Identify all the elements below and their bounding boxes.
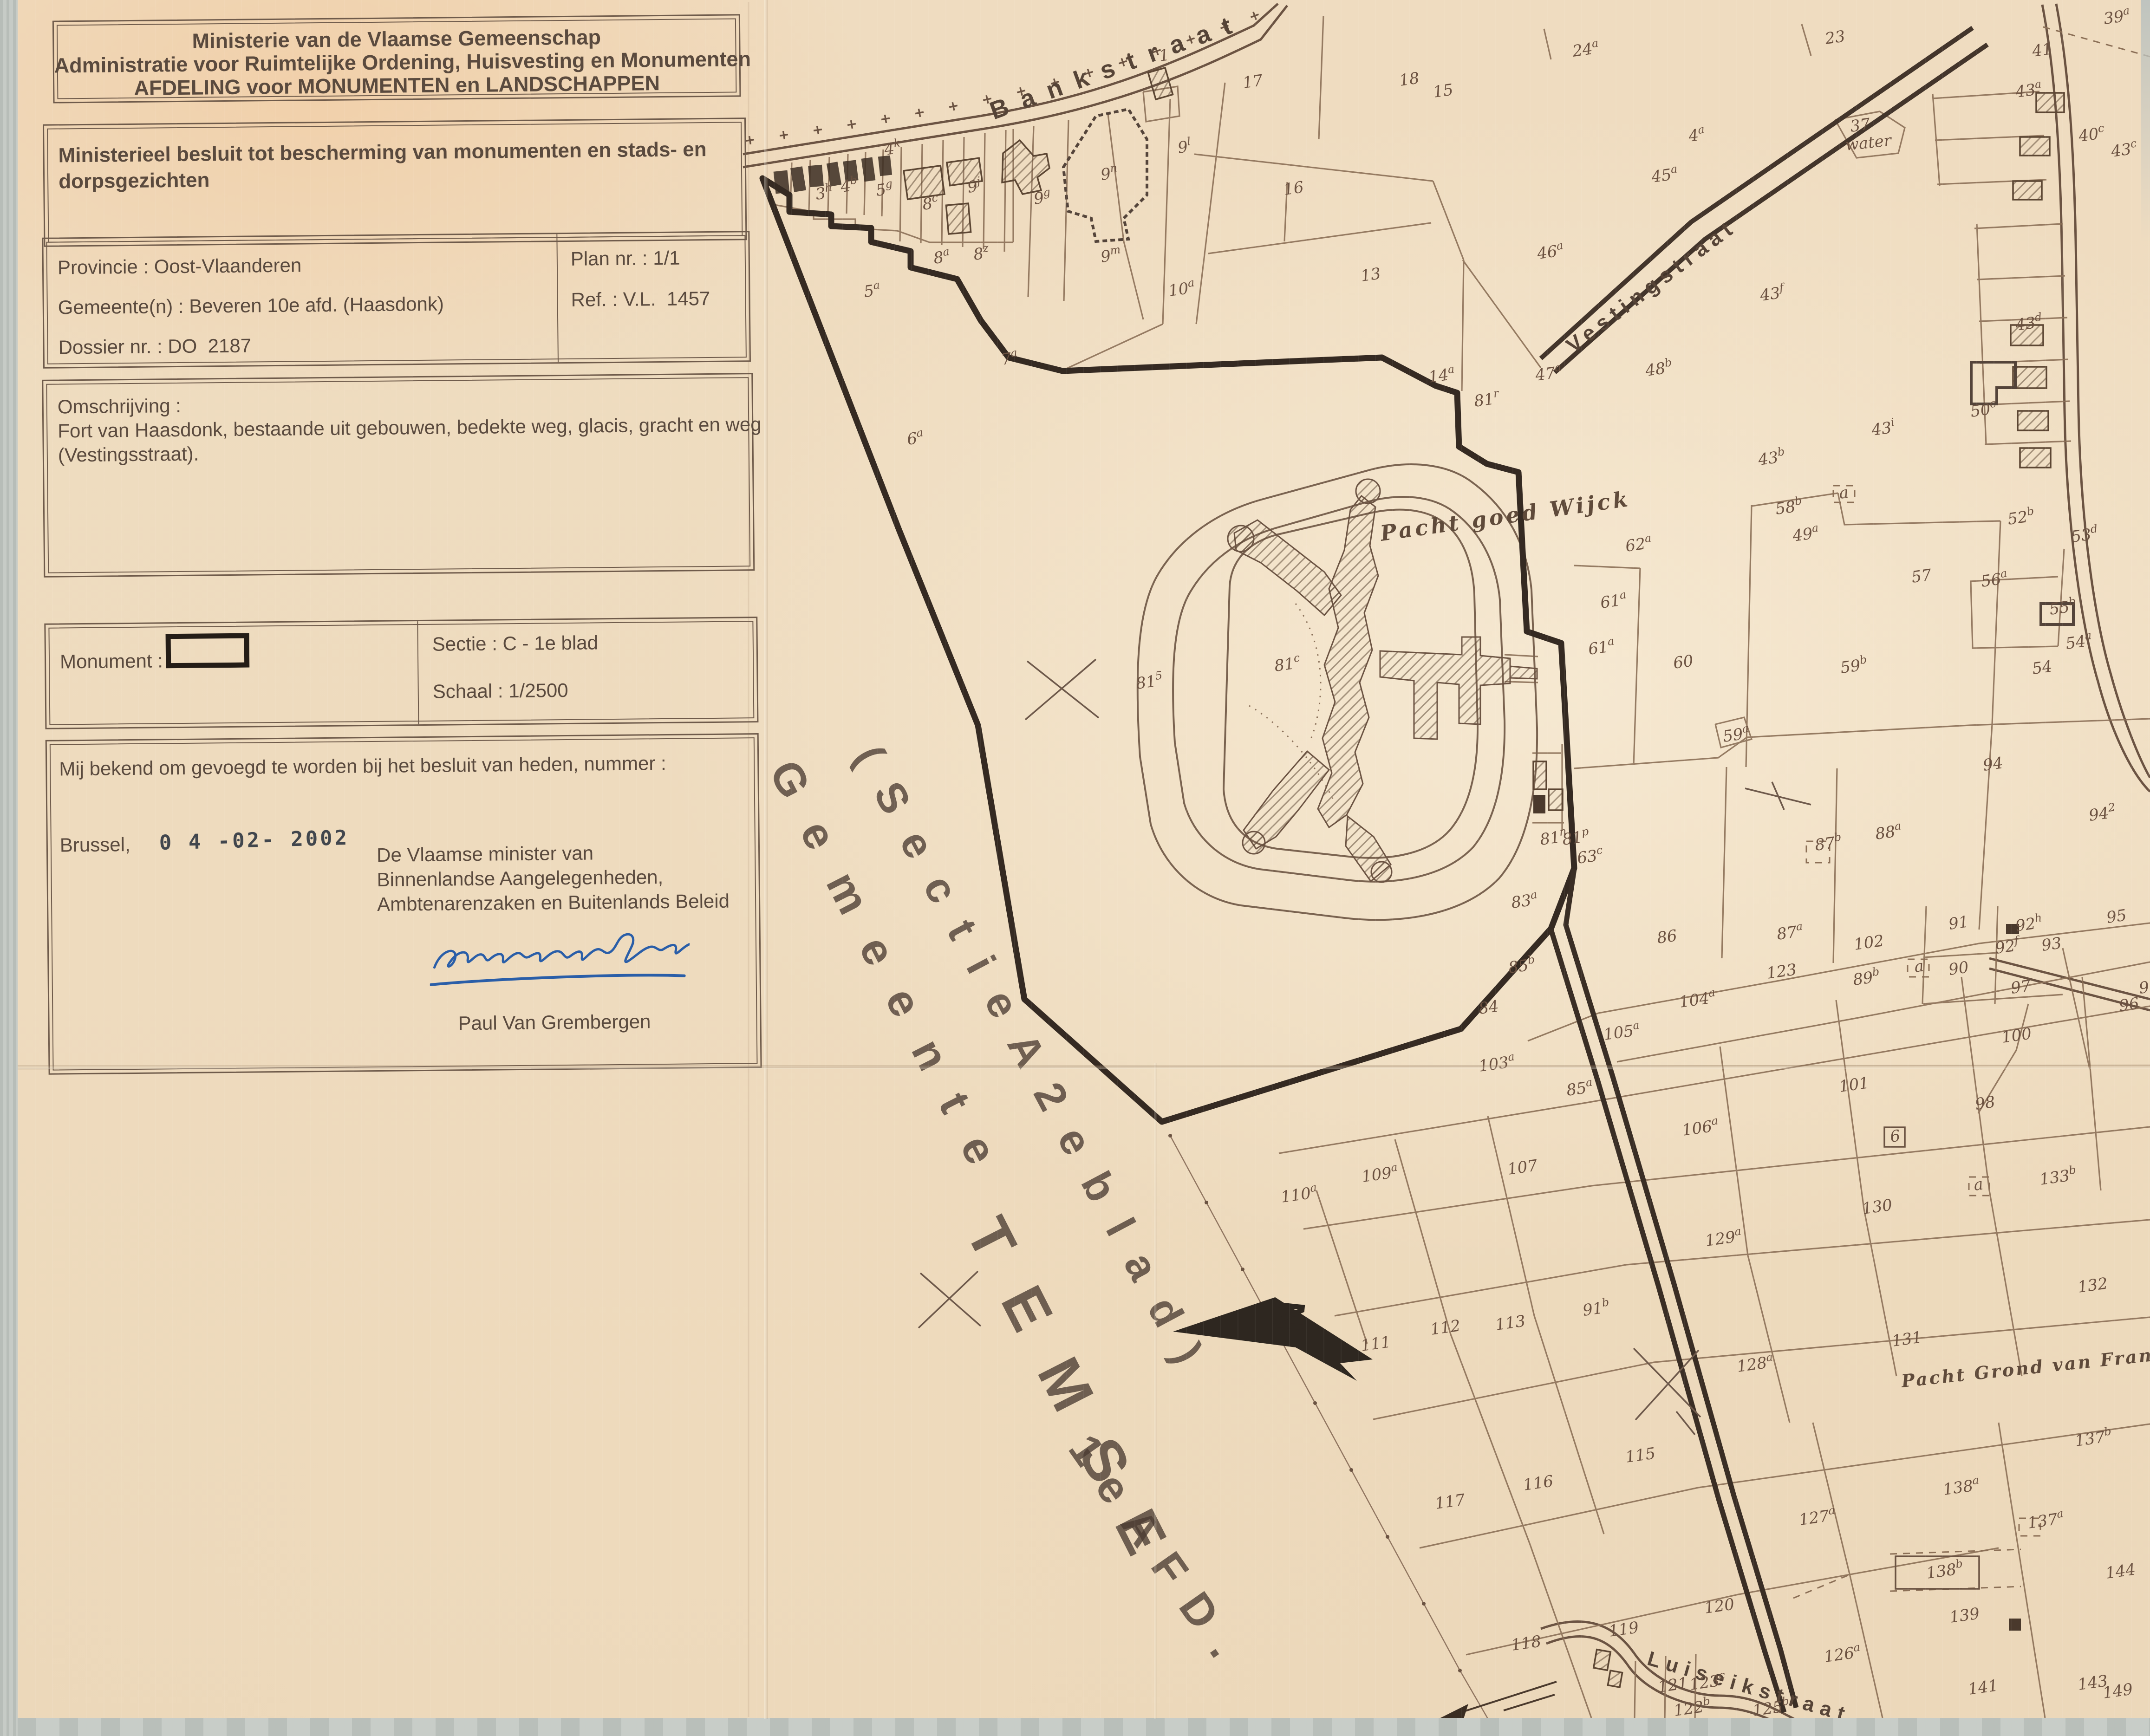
parcel-label: 60 xyxy=(1672,651,1694,673)
parcel-label: 16 xyxy=(1283,178,1305,199)
ref-label: Ref. : V.L. 1457 xyxy=(571,287,710,311)
parcel-lines xyxy=(772,16,2150,1723)
parcel-label: 137b xyxy=(2073,1424,2113,1450)
parcel-label: a xyxy=(1973,1175,1985,1194)
municipality-label: Gemeente(n) : Beveren 10e afd. (Haasdonk… xyxy=(58,293,444,319)
parcel-label: 81c xyxy=(1273,651,1302,675)
parcel-label: 59b xyxy=(1839,653,1869,677)
parcel-label: 118 xyxy=(1510,1632,1543,1655)
parcel-label: 4b xyxy=(839,173,859,196)
parcel-label: 39a xyxy=(2102,4,2131,28)
parcel-label: 15 xyxy=(1432,80,1454,102)
parcel-label: 144 xyxy=(2104,1560,2137,1583)
parcel-label: 43c xyxy=(2109,137,2138,161)
monument-label: Monument : xyxy=(60,650,163,673)
parcel-label: 24a xyxy=(1570,36,1600,61)
parcel-label: 18 xyxy=(1398,69,1420,90)
parcel-label: 85a xyxy=(1565,1075,1594,1100)
parcel-label: 13 xyxy=(1360,264,1382,286)
parcel-label: 122b xyxy=(1672,1694,1712,1720)
parcel-label: 96 xyxy=(2118,994,2140,1015)
parcel-label: 130 xyxy=(1861,1196,1894,1218)
minister-line1: De Vlaamse minister van xyxy=(377,842,593,866)
parcel-label: 46a xyxy=(1535,239,1565,263)
parcel-label: 62a xyxy=(1624,531,1653,556)
parcel-label: 41 xyxy=(2031,39,2053,61)
parcel-label: 97 xyxy=(2010,976,2033,998)
parcel-label: 113 xyxy=(1494,1312,1527,1334)
parcel-label: 123 xyxy=(1766,960,1798,983)
parcel-label: 101 xyxy=(1838,1073,1870,1096)
dossier-label: Dossier nr. : DO 2187 xyxy=(58,334,251,358)
parcel-label: 83a xyxy=(1510,888,1539,912)
pacht-goed-wijck-label: Pacht goed Wijck xyxy=(1378,486,1632,546)
parcel-label: 4k xyxy=(882,136,902,159)
scanner-edge-bottom xyxy=(18,1718,2150,1736)
parcel-label: 8z xyxy=(972,241,991,264)
parcel-label: 104a xyxy=(1678,986,1717,1012)
bankstraat-label: Bankstraat xyxy=(986,7,1249,125)
parcel-label: 45a xyxy=(1649,162,1679,187)
parcel-label: 81r xyxy=(1472,387,1501,411)
parcel-label: 133b xyxy=(2038,1163,2078,1189)
parcel-label: 89b xyxy=(1851,965,1881,989)
parcel-label: 40c xyxy=(2077,121,2106,146)
parcel-label: 91b xyxy=(1581,1295,1611,1320)
parcel-label: 121 xyxy=(1657,1674,1689,1697)
minister-line2: Binnenlandse Aangelegenheden, xyxy=(377,866,663,891)
protected-road-south xyxy=(1551,869,1796,1712)
parcel-label: 138a xyxy=(1942,1473,1981,1499)
parcel-label: 61a xyxy=(1587,634,1616,659)
parcel-label: 53d xyxy=(2070,522,2099,546)
parcel-label: 43i xyxy=(1870,416,1896,440)
parcel-label: 9l xyxy=(1176,135,1192,157)
scanner-edge-left xyxy=(0,0,18,1736)
subject-line2: dorpsgezichten xyxy=(59,169,210,193)
parcel-label: 87b xyxy=(1813,830,1843,855)
parcel-label: 23 xyxy=(1824,27,1846,48)
parcel-label: 93 xyxy=(2040,934,2063,955)
scanner-edge-topright xyxy=(2141,0,2150,241)
north-letter: N xyxy=(1264,1298,1314,1334)
parcel-label: 105a xyxy=(1602,1018,1642,1044)
description-line2: (Vestingsstraat). xyxy=(58,443,199,467)
parcel-label: 86 xyxy=(1656,926,1678,948)
parcel-label: 119 xyxy=(1608,1618,1640,1641)
legend-box: Monument : Sectie : C - 1e blad Schaal :… xyxy=(44,617,758,729)
parcel-label: 10a xyxy=(1167,276,1196,300)
parcel-label: 9m xyxy=(1099,243,1122,267)
description-box: Omschrijving : Fort van Haasdonk, bestaa… xyxy=(42,373,755,578)
parcel-label: 100 xyxy=(2000,1024,2033,1047)
parcel-label: 132 xyxy=(2077,1274,2109,1297)
parcel-label: 110a xyxy=(1279,1181,1319,1207)
parcel-label: 8a xyxy=(932,245,951,268)
parcel-label: 6 xyxy=(1889,1126,1902,1146)
parcel-label: 84 xyxy=(1478,997,1500,1018)
subject-box: Ministerieel besluit tot bescherming van… xyxy=(43,117,747,247)
plan-label: Plan nr. : 1/1 xyxy=(571,247,680,270)
description-title: Omschrijving : xyxy=(58,395,182,418)
minister-line3: Ambtenarenzaken en Buitenlands Beleid xyxy=(377,890,730,916)
parcel-label: 6a xyxy=(906,426,925,449)
sectie-label: Sectie : C - 1e blad xyxy=(432,631,599,655)
parcel-label: 127a xyxy=(1798,1503,1837,1529)
parcel-label: 141 xyxy=(1967,1676,2000,1699)
stamp-afd: 1 e A F D . xyxy=(1059,1426,1251,1670)
parcel-label: 131 xyxy=(1891,1328,1923,1351)
map-labels: BankstraatVestingstraatPacht goed WijckP… xyxy=(760,4,2150,1727)
parcel-label: 139 xyxy=(1948,1604,1981,1627)
parcel-label: 91 xyxy=(1948,912,1970,934)
city-label: Brussel, xyxy=(60,833,130,856)
parcel-label: 88a xyxy=(1874,819,1903,844)
signature xyxy=(430,921,691,997)
minister-name: Paul Van Grembergen xyxy=(458,1010,651,1034)
parcel-label: 87a xyxy=(1775,919,1805,944)
parcel-label: 17 xyxy=(1242,71,1264,92)
parcel-label: 137a xyxy=(2026,1507,2065,1533)
parcel-label: 49a xyxy=(1791,521,1820,546)
parcel-label: 95 xyxy=(2105,906,2128,927)
parcel-label: 5g xyxy=(874,177,894,200)
parcel-label: 92f xyxy=(1994,934,2022,958)
signature-box: Mij bekend om gevoegd te worden bij het … xyxy=(46,733,762,1075)
parcel-label: 102 xyxy=(1853,931,1885,954)
vestingstraat-label: Vestingstraat xyxy=(1562,214,1741,358)
parcel-label: 54 xyxy=(2031,657,2053,678)
parcel-label: 942 xyxy=(2087,800,2117,825)
province-label: Provincie : Oost-Vlaanderen xyxy=(58,254,302,279)
parcel-label: 103a xyxy=(1477,1050,1517,1076)
parcel-label: 111 xyxy=(1360,1333,1392,1355)
pacht-grond-label: Pacht Grond van Frans De Ri xyxy=(1900,1336,2150,1392)
parcel-label: 129a xyxy=(1704,1224,1743,1250)
schaal-label: Schaal : 1/2500 xyxy=(433,679,568,703)
parcel-label: 37 xyxy=(1849,115,1872,136)
decree-document-panel: Ministerie van de Vlaamse Gemeenschap Ad… xyxy=(17,0,780,1114)
parcel-label: 117 xyxy=(1434,1490,1466,1513)
parcel-label: 109a xyxy=(1360,1160,1400,1186)
parcel-label: 14a xyxy=(1427,362,1456,387)
parcel-label: 85b xyxy=(1507,953,1537,977)
parcel-label: 43f xyxy=(1758,281,1787,306)
parcel-label: 107 xyxy=(1506,1156,1539,1179)
parcel-label: 815 xyxy=(1134,669,1164,693)
parcel-label: 50c xyxy=(1969,397,1998,421)
parcel-label: 48b xyxy=(1643,356,1674,380)
parcel-label: 120 xyxy=(1703,1595,1736,1618)
parcel-label: 4a xyxy=(1687,123,1707,146)
parcel-label: 58b xyxy=(1774,494,1804,519)
parcel-label: 63c xyxy=(1576,843,1604,867)
parcel-label: 98 xyxy=(1974,1092,1996,1114)
monument-symbol xyxy=(166,633,250,669)
parcel-label: 92h xyxy=(2014,911,2044,936)
parcel-label: 149 xyxy=(2102,1680,2134,1703)
parcel-label: 106a xyxy=(1681,1114,1720,1140)
parcel-label: 90 xyxy=(1948,958,1970,979)
parcel-label: 56a xyxy=(1980,566,2009,591)
parcel-label: 57 xyxy=(1910,566,1933,587)
identification-box: Provincie : Oost-Vlaanderen Gemeente(n) … xyxy=(42,231,751,369)
parcel-label: 5a xyxy=(862,278,882,301)
parcel-label: 61a xyxy=(1599,588,1628,612)
parcel-label: 115 xyxy=(1624,1444,1657,1467)
parcel-label: 94 xyxy=(1982,754,2004,775)
parcel-label: 99 xyxy=(2138,976,2150,998)
parcel-label: 43b xyxy=(1756,445,1786,469)
parcel-label: 52b xyxy=(2006,504,2036,529)
header-box: Ministerie van de Vlaamse Gemeenschap Ad… xyxy=(52,14,741,103)
parcel-label: 116 xyxy=(1522,1472,1555,1495)
parcel-label: 126a xyxy=(1823,1640,1862,1666)
symbol-boxes xyxy=(1884,1127,1979,1589)
parcel-label: 112 xyxy=(1429,1316,1462,1339)
